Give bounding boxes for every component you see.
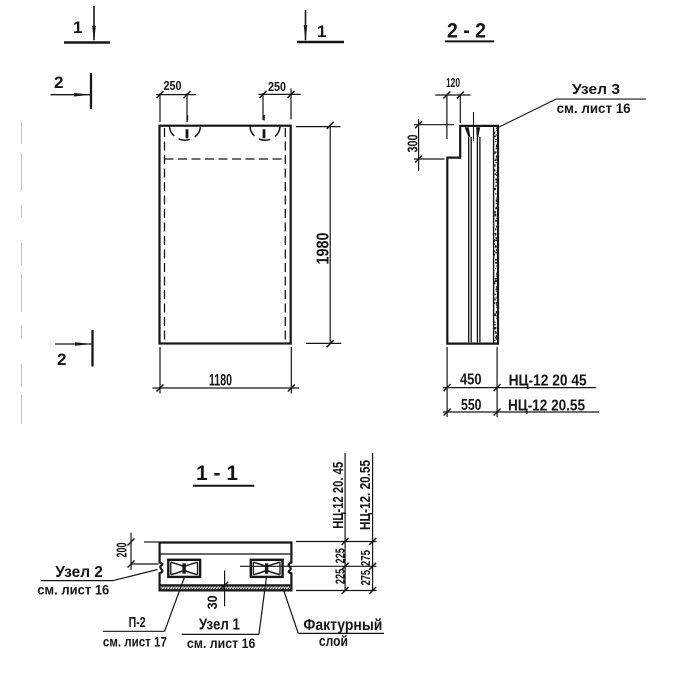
svg-text:НЦ-12 20. 45: НЦ-12 20. 45 [331,462,347,529]
svg-text:2 - 2: 2 - 2 [447,20,486,43]
svg-text:1: 1 [73,18,82,37]
svg-text:Фактурный: Фактурный [303,617,382,634]
svg-text:1 - 1: 1 - 1 [196,462,238,485]
svg-text:НЦ-12 20.55: НЦ-12 20.55 [508,398,585,415]
svg-text:см. лист 16: см. лист 16 [37,583,109,598]
svg-text:Узел 2: Узел 2 [55,564,103,581]
svg-text:НЦ-12 20 45: НЦ-12 20 45 [509,373,587,390]
svg-text:см. лист 16: см. лист 16 [557,100,631,116]
svg-text:Узел 3: Узел 3 [572,82,620,98]
svg-text:275: 275 [359,550,373,566]
svg-text:120: 120 [446,75,460,90]
svg-text:1980: 1980 [313,232,333,264]
svg-text:П-2: П-2 [129,615,146,631]
svg-text:225: 225 [333,569,347,584]
svg-text:550: 550 [461,397,482,414]
svg-text:2: 2 [54,73,63,92]
svg-text:слой: слой [319,634,348,650]
svg-text:см. лист 17: см. лист 17 [103,635,167,650]
svg-text:Узел 1: Узел 1 [199,617,240,634]
svg-text:300: 300 [405,135,421,153]
svg-text:200: 200 [114,543,130,558]
svg-text:250: 250 [268,79,286,94]
svg-text:225: 225 [333,548,347,563]
svg-text:275: 275 [359,570,373,586]
svg-text:НЦ-12. 20.55: НЦ-12. 20.55 [358,460,374,530]
svg-text:2: 2 [57,350,66,369]
svg-text:1180: 1180 [209,371,232,389]
svg-text:см. лист 16: см. лист 16 [187,635,256,651]
svg-text:30: 30 [204,595,220,609]
svg-text:1: 1 [317,22,326,41]
svg-text:250: 250 [164,78,182,93]
svg-text:450: 450 [460,371,482,388]
